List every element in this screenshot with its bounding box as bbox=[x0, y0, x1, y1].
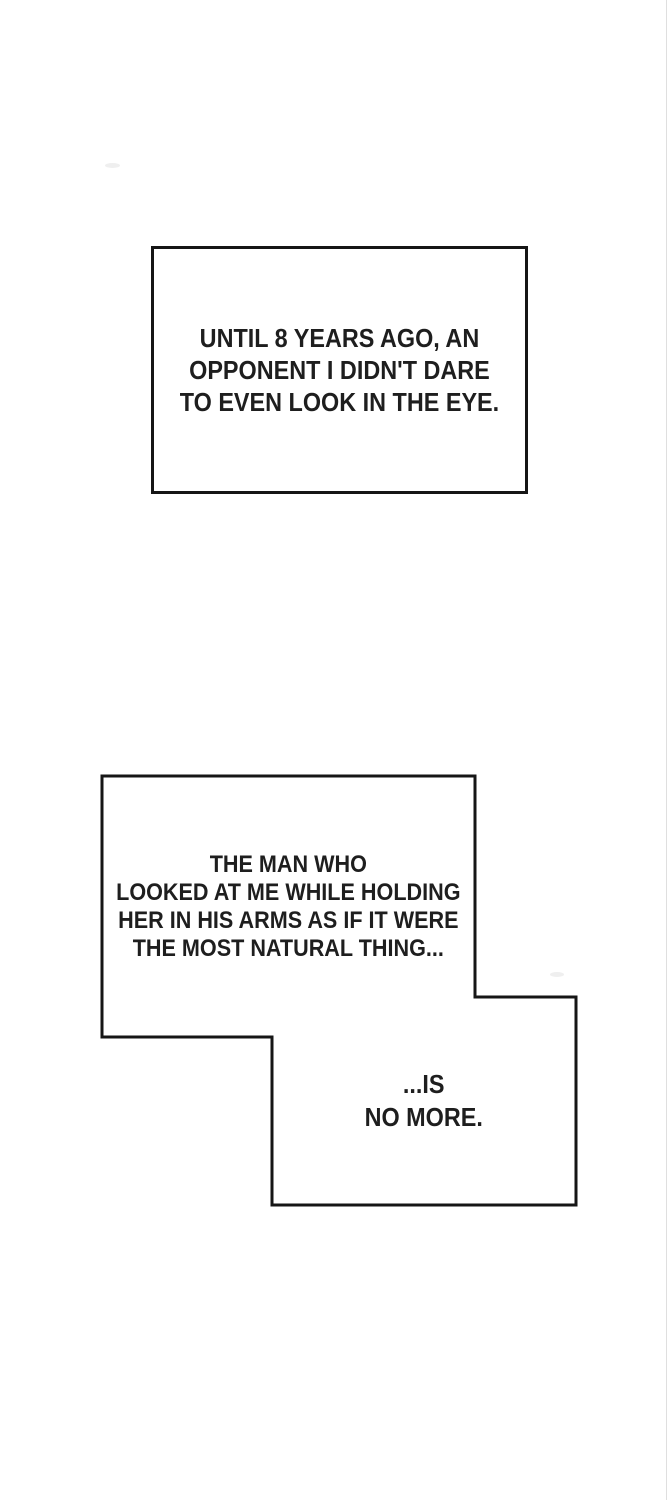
narration-text-bottom-upper: THE MAN WHO LOOKED AT ME WHILE HOLDING H… bbox=[116, 851, 460, 963]
text-line: LOOKED AT ME WHILE HOLDING bbox=[116, 879, 460, 907]
text-line: TO EVEN LOOK IN THE EYE. bbox=[180, 386, 499, 418]
comic-page: UNTIL 8 YEARS AGO, AN OPPONENT I DIDN'T … bbox=[0, 0, 667, 1500]
narration-box-top: UNTIL 8 YEARS AGO, AN OPPONENT I DIDN'T … bbox=[151, 246, 528, 494]
text-line: UNTIL 8 YEARS AGO, AN bbox=[180, 322, 499, 354]
text-line: NO MORE. bbox=[365, 1101, 483, 1134]
text-line: OPPONENT I DIDN'T DARE bbox=[180, 354, 499, 386]
text-line: THE MAN WHO bbox=[116, 851, 460, 879]
scan-smudge bbox=[105, 163, 120, 168]
text-line: ...IS bbox=[365, 1068, 483, 1101]
narration-text-bottom-lower: ...IS NO MORE. bbox=[365, 1068, 483, 1134]
text-line: THE MOST NATURAL THING... bbox=[116, 935, 460, 963]
narration-text-top: UNTIL 8 YEARS AGO, AN OPPONENT I DIDN'T … bbox=[180, 322, 499, 418]
narration-box-bottom-lower: ...IS NO MORE. bbox=[272, 997, 576, 1205]
text-line: HER IN HIS ARMS AS IF IT WERE bbox=[116, 907, 460, 935]
